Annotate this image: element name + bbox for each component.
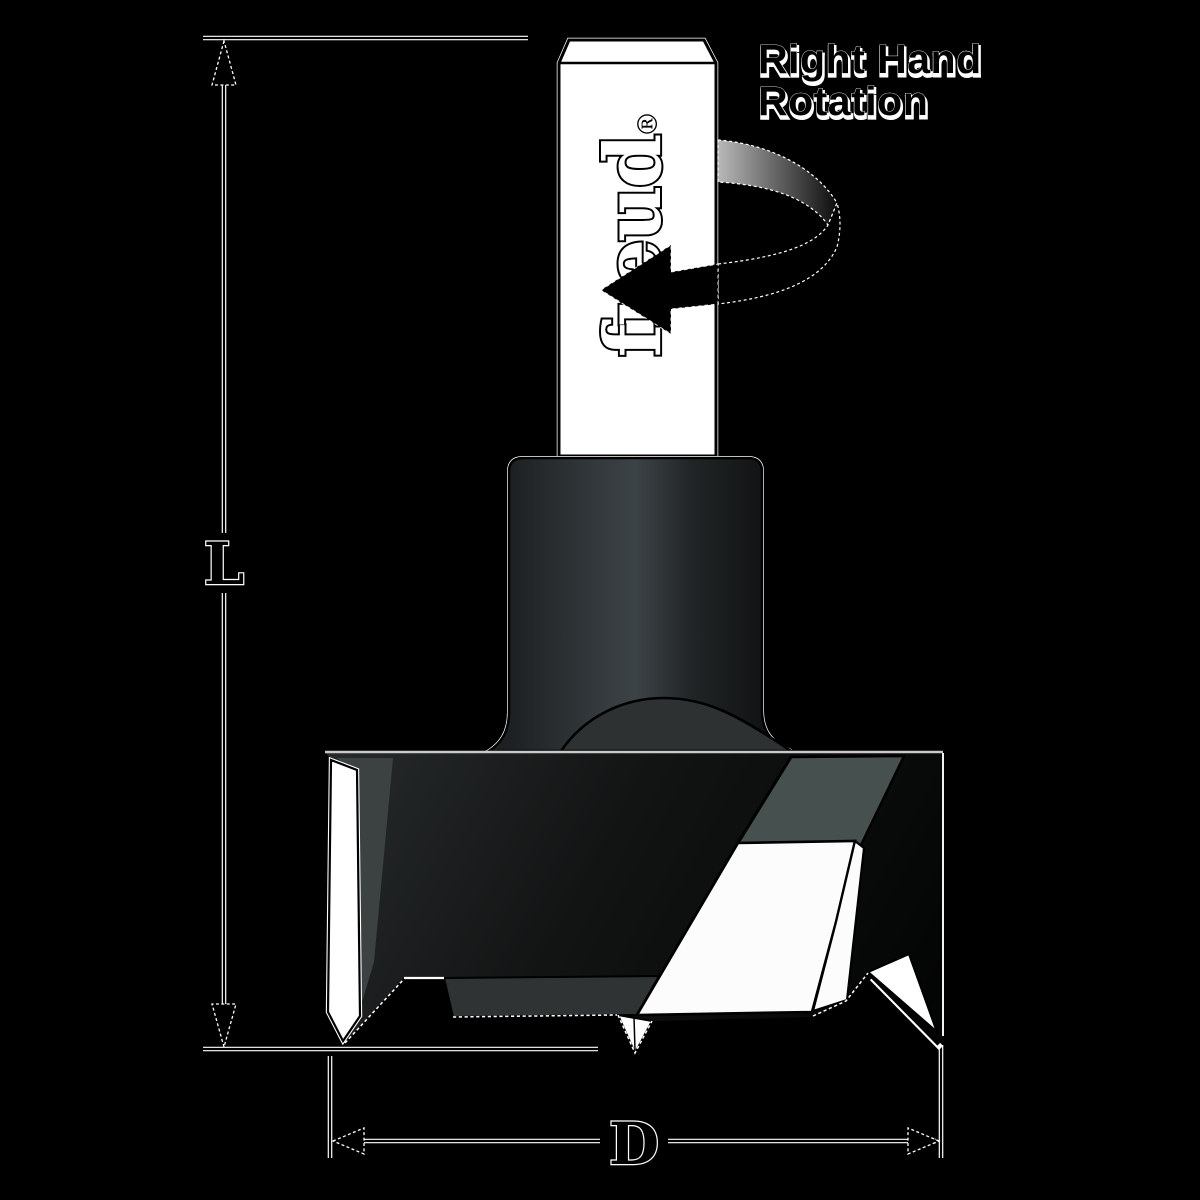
diagram-canvas: L D freud ® xyxy=(0,0,1200,1200)
diameter-label: D xyxy=(609,1110,659,1178)
registered-mark: ® xyxy=(633,111,664,138)
length-label: L xyxy=(204,530,245,598)
bit-shank: freud ® xyxy=(559,40,716,456)
bit-collar xyxy=(489,458,791,751)
svg-text:Rotation: Rotation xyxy=(758,78,928,124)
left-spur xyxy=(328,760,360,1041)
gouge-land xyxy=(444,976,659,1017)
svg-text:Right Hand: Right Hand xyxy=(758,36,982,82)
